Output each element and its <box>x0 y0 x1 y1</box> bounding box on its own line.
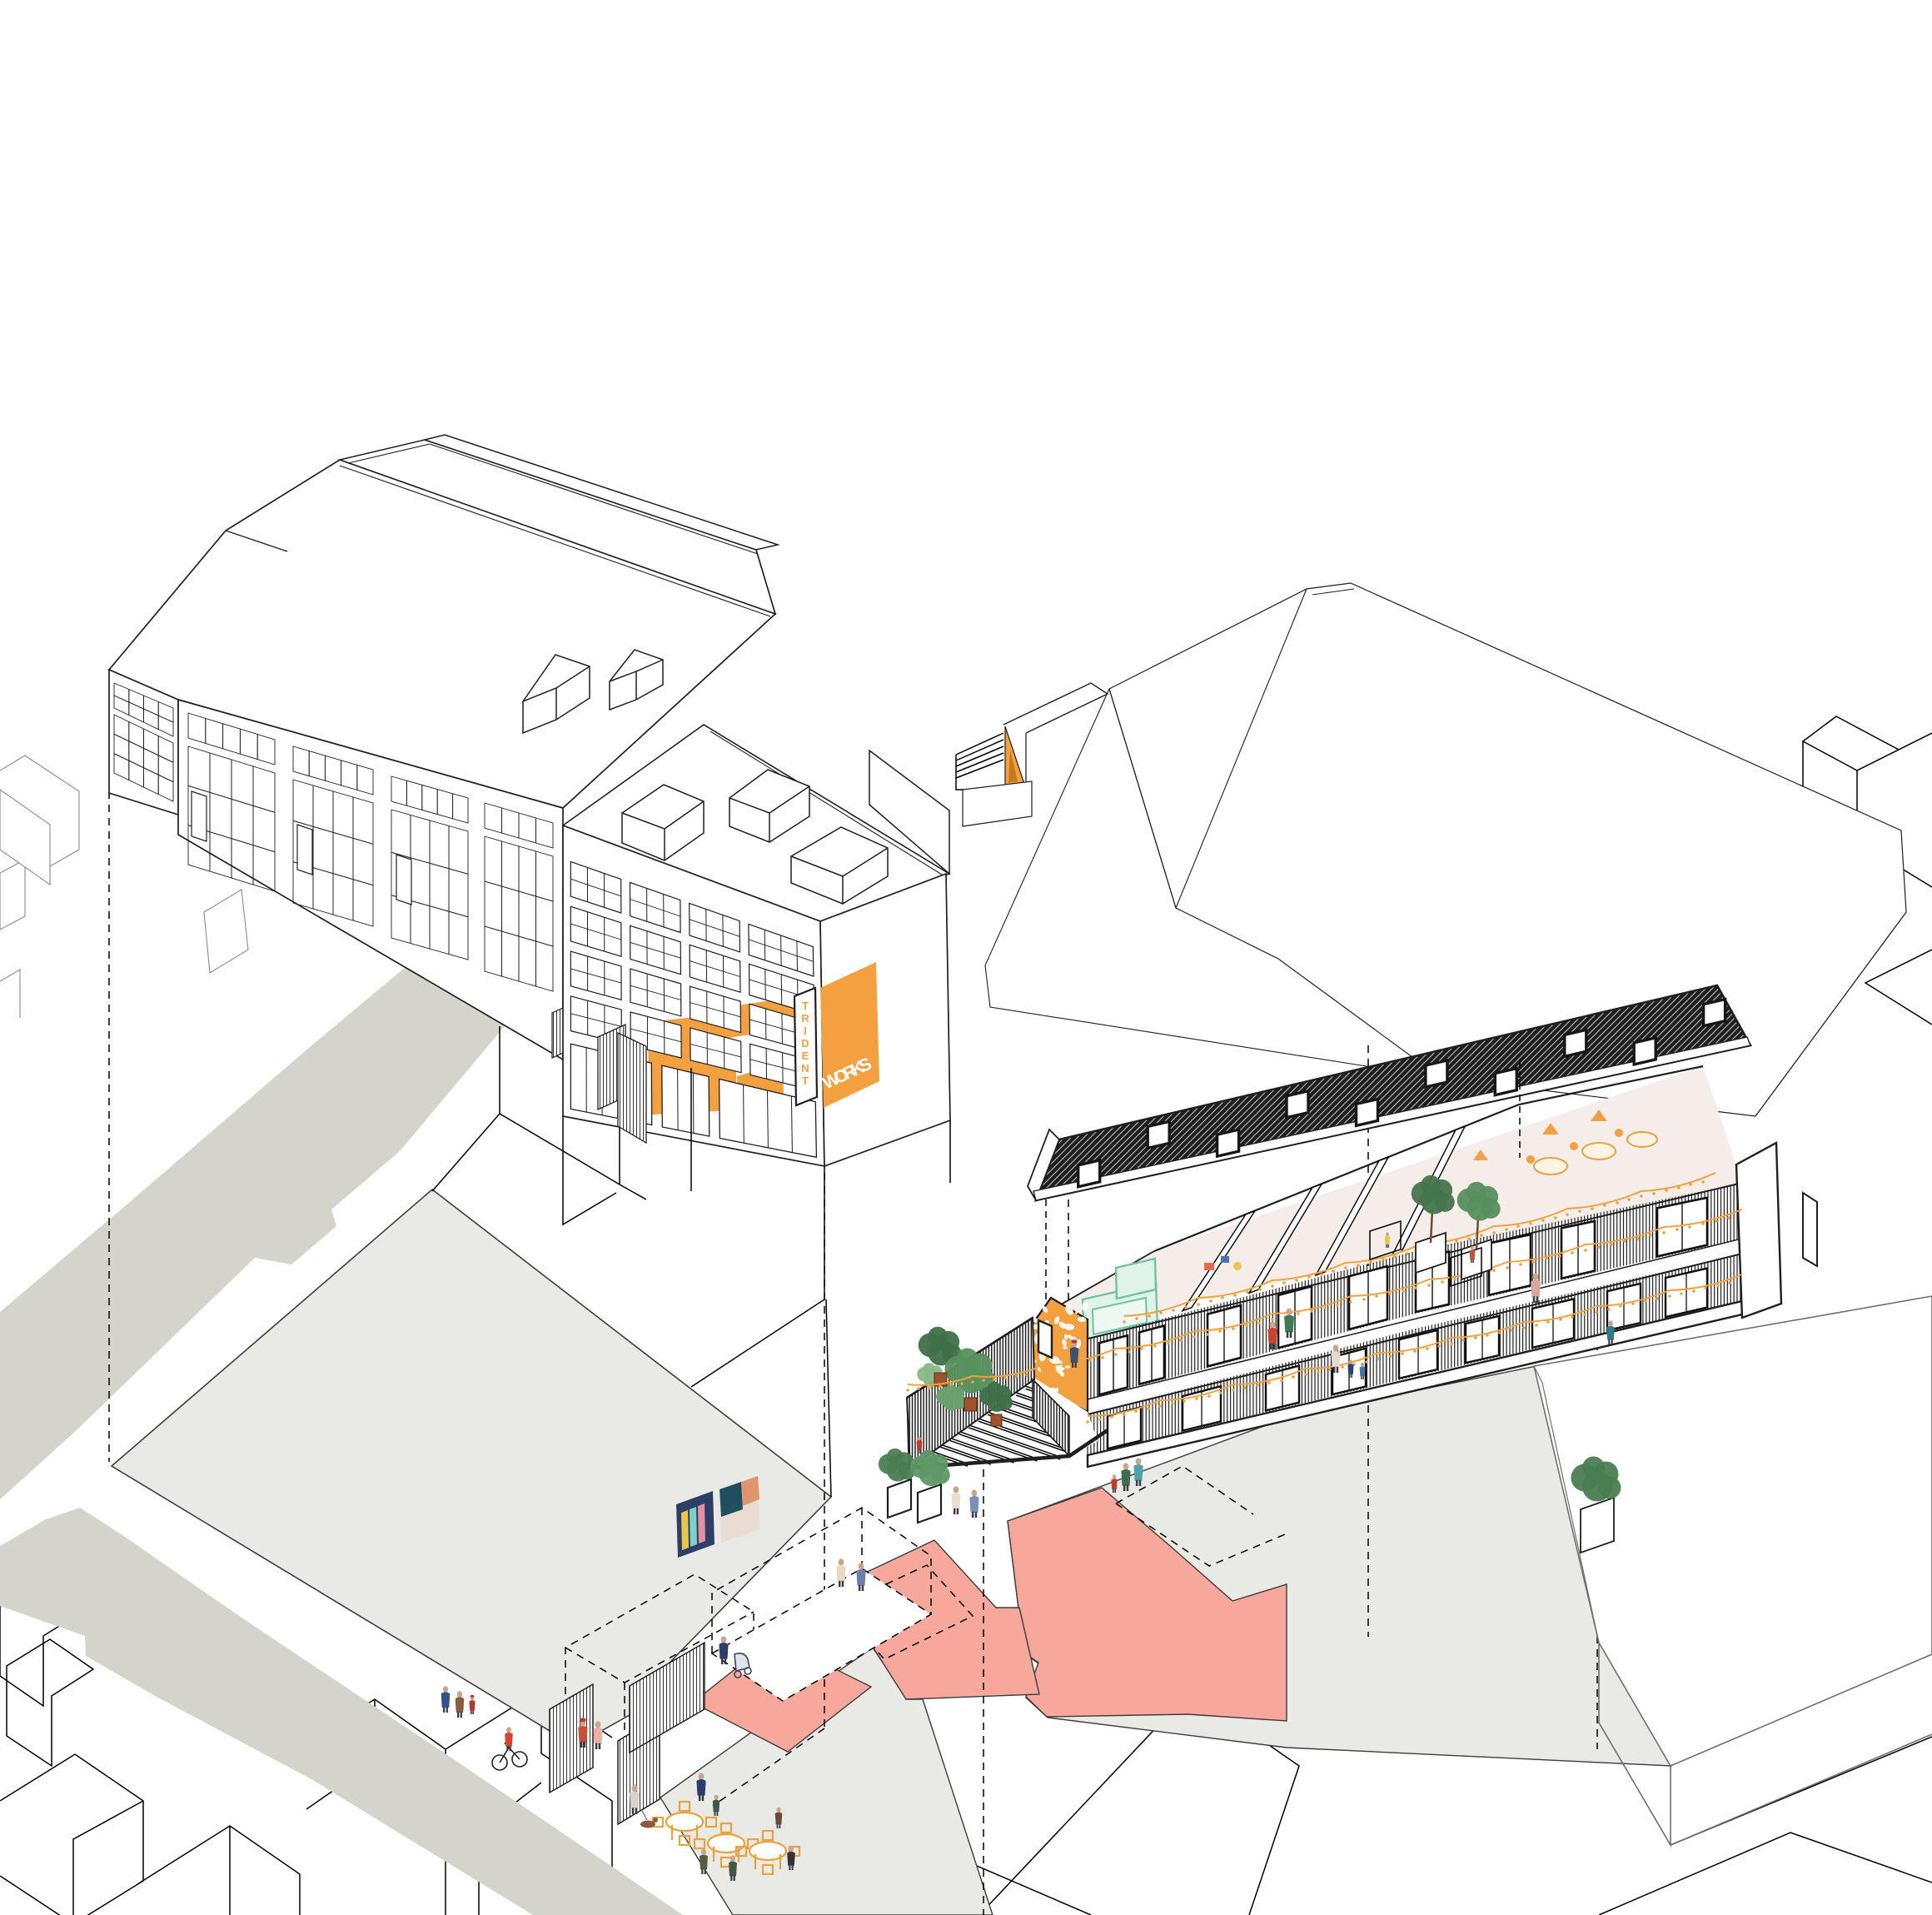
svg-text:E: E <box>802 1050 809 1062</box>
svg-text:T: T <box>802 1075 809 1087</box>
svg-text:D: D <box>801 1037 809 1050</box>
svg-text:R: R <box>801 1012 809 1025</box>
svg-text:T: T <box>802 1000 809 1012</box>
svg-text:I: I <box>804 1025 807 1037</box>
svg-text:N: N <box>801 1062 809 1075</box>
